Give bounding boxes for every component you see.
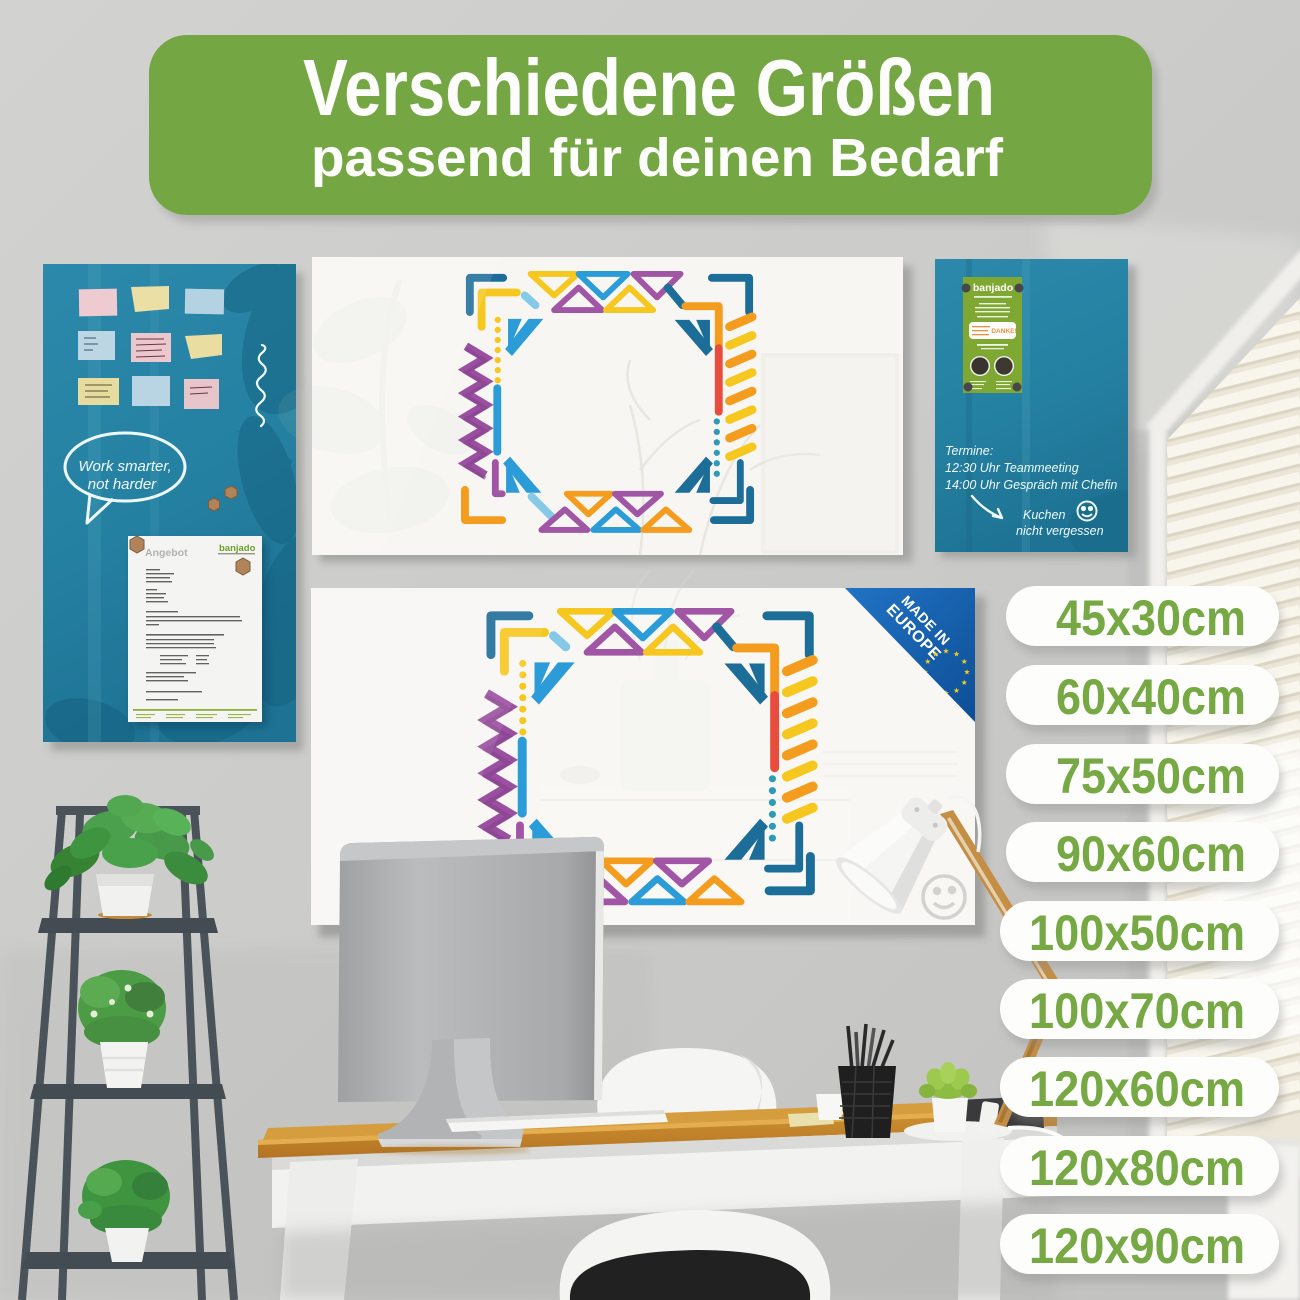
svg-text:banjado: banjado <box>973 282 1013 294</box>
svg-text:90x60cm: 90x60cm <box>1056 826 1246 882</box>
svg-text:60x40cm: 60x40cm <box>1056 669 1246 725</box>
svg-text:Angebot: Angebot <box>145 547 188 559</box>
svg-text:★: ★ <box>961 678 968 687</box>
svg-text:passend für deinen Bedarf: passend für deinen Bedarf <box>311 128 1004 188</box>
svg-text:nicht vergessen: nicht vergessen <box>1016 524 1104 538</box>
svg-text:★: ★ <box>924 657 931 666</box>
svg-text:Termine:: Termine: <box>945 444 993 458</box>
svg-text:Kuchen: Kuchen <box>1023 508 1065 522</box>
svg-text:14:00 Uhr Gespräch mit Chefin: 14:00 Uhr Gespräch mit Chefin <box>945 478 1117 492</box>
svg-text:banjado: banjado <box>219 543 256 554</box>
svg-text:100x70cm: 100x70cm <box>1029 983 1245 1039</box>
svg-text:Verschiedene Größen: Verschiedene Größen <box>303 43 995 132</box>
svg-text:Work smarter,: Work smarter, <box>78 458 171 475</box>
svg-text:★: ★ <box>932 649 939 658</box>
svg-text:★: ★ <box>953 649 960 658</box>
svg-text:120x90cm: 120x90cm <box>1029 1218 1245 1274</box>
svg-text:★: ★ <box>953 686 960 695</box>
svg-text:not harder: not harder <box>88 476 157 493</box>
svg-text:★: ★ <box>964 668 971 677</box>
svg-text:★: ★ <box>961 657 968 666</box>
svg-text:100x50cm: 100x50cm <box>1029 905 1245 961</box>
svg-text:120x80cm: 120x80cm <box>1029 1140 1245 1196</box>
svg-text:120x60cm: 120x60cm <box>1029 1061 1245 1117</box>
svg-text:12:30 Uhr Teammeeting: 12:30 Uhr Teammeeting <box>945 461 1079 475</box>
svg-text:45x30cm: 45x30cm <box>1056 590 1246 646</box>
svg-text:75x50cm: 75x50cm <box>1056 748 1246 804</box>
svg-text:DANKE!: DANKE! <box>991 328 1016 335</box>
svg-text:★: ★ <box>943 647 950 656</box>
